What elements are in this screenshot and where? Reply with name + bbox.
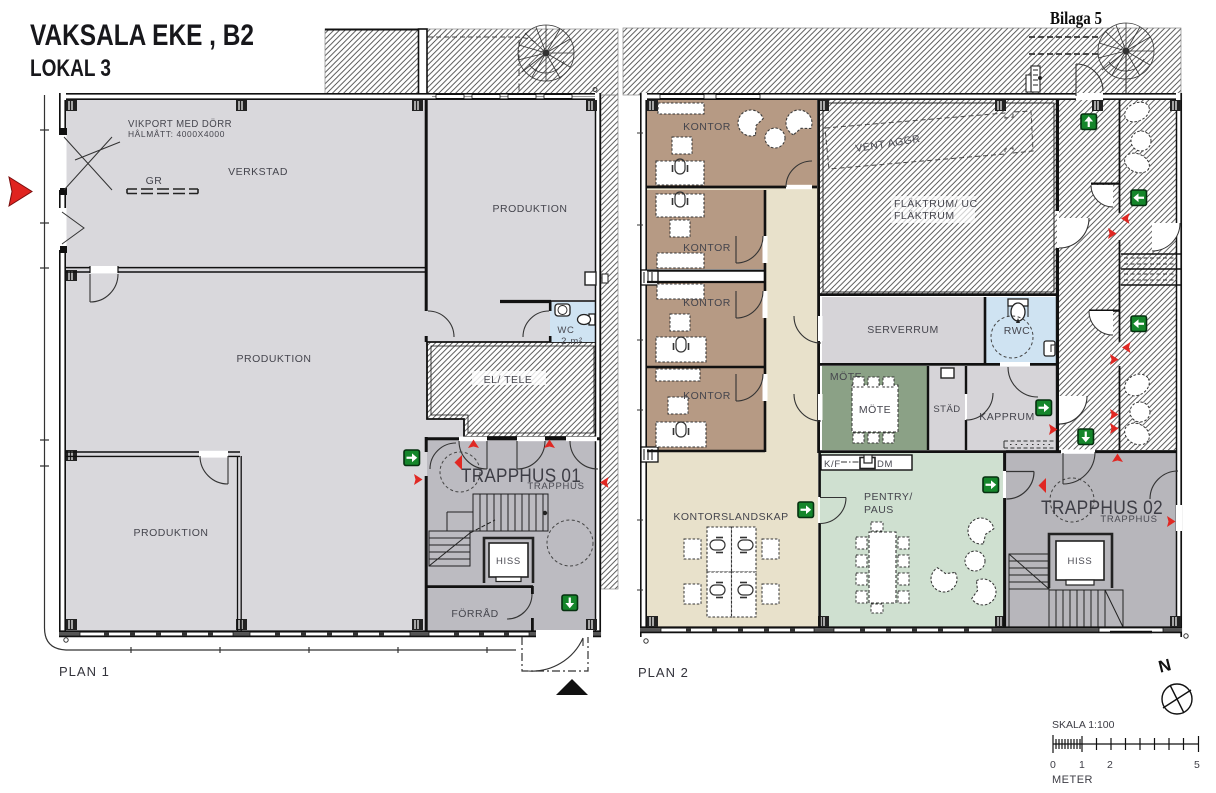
- svg-text:METER: METER: [1052, 774, 1093, 786]
- svg-text:SERVERRUM: SERVERRUM: [867, 324, 938, 336]
- svg-text:TRAPPHUS: TRAPPHUS: [527, 481, 584, 492]
- svg-text:PLAN 2: PLAN 2: [638, 665, 689, 680]
- svg-text:SKALA 1:100: SKALA 1:100: [1052, 719, 1115, 731]
- svg-text:HISS: HISS: [1068, 556, 1093, 567]
- svg-text:K/F: K/F: [824, 459, 841, 470]
- svg-text:KONTOR: KONTOR: [683, 121, 731, 133]
- svg-text:FLÄKTRUM/ UC: FLÄKTRUM/ UC: [894, 198, 978, 210]
- svg-text:2 m²: 2 m²: [561, 336, 583, 347]
- svg-text:PRODUKTION: PRODUKTION: [236, 353, 311, 365]
- svg-text:Bilaga 5: Bilaga 5: [1050, 8, 1102, 28]
- svg-text:PLAN 1: PLAN 1: [59, 664, 110, 679]
- svg-text:PENTRY/: PENTRY/: [864, 491, 913, 503]
- svg-text:PRODUKTION: PRODUKTION: [492, 203, 567, 215]
- svg-text:5: 5: [1194, 759, 1200, 771]
- svg-text:RWC: RWC: [1004, 325, 1030, 337]
- svg-text:STÄD: STÄD: [933, 404, 960, 415]
- svg-text:EL/ TELE: EL/ TELE: [484, 374, 533, 386]
- svg-text:TRAPPHUS: TRAPPHUS: [1100, 514, 1157, 525]
- svg-text:WC: WC: [557, 325, 574, 336]
- svg-text:KONTORSLANDSKAP: KONTORSLANDSKAP: [673, 511, 788, 523]
- svg-text:GR: GR: [146, 175, 163, 187]
- svg-text:KONTOR: KONTOR: [683, 297, 731, 309]
- svg-text:VERKSTAD: VERKSTAD: [228, 166, 288, 178]
- svg-text:PRODUKTION: PRODUKTION: [133, 527, 208, 539]
- svg-text:KONTOR: KONTOR: [683, 390, 731, 402]
- svg-text:LOKAL 3: LOKAL 3: [30, 55, 111, 82]
- svg-text:KONTOR: KONTOR: [683, 242, 731, 254]
- svg-text:MÖTE: MÖTE: [859, 404, 891, 416]
- svg-text:KAPPRUM: KAPPRUM: [979, 411, 1034, 423]
- svg-text:2: 2: [1107, 759, 1113, 771]
- svg-text:PAUS: PAUS: [864, 504, 894, 516]
- svg-text:VAKSALA EKE , B2: VAKSALA EKE , B2: [30, 19, 254, 52]
- svg-text:HISS: HISS: [496, 556, 521, 567]
- svg-text:DM: DM: [877, 459, 893, 470]
- svg-text:FÖRRÅD: FÖRRÅD: [451, 607, 498, 620]
- svg-text:HÅLMÅTT: 4000X4000: HÅLMÅTT: 4000X4000: [128, 129, 225, 139]
- svg-text:FLÄKTRUM: FLÄKTRUM: [894, 210, 955, 222]
- svg-text:1: 1: [1079, 759, 1085, 771]
- svg-text:0: 0: [1050, 759, 1056, 771]
